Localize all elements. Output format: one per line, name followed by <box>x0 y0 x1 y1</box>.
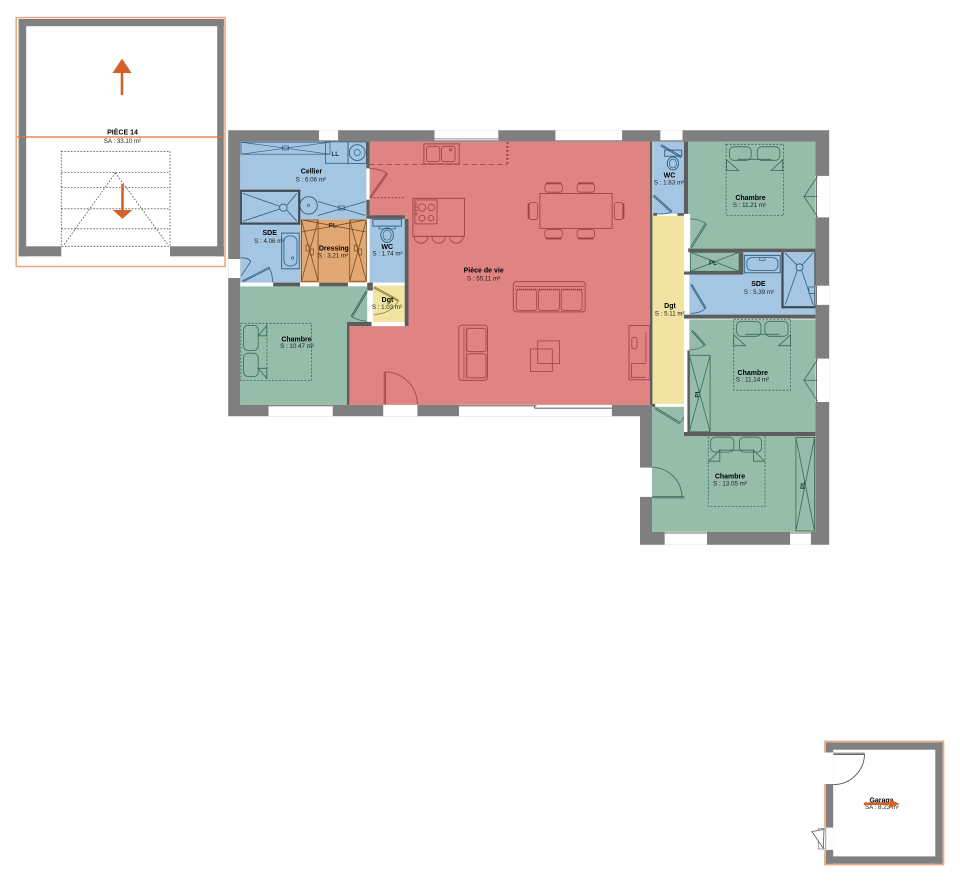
svg-text:S : 5.39 m²: S : 5.39 m² <box>744 289 774 296</box>
svg-text:PIÈCE 14: PIÈCE 14 <box>107 127 138 136</box>
svg-text:S : 6.06 m²: S : 6.06 m² <box>296 177 326 184</box>
svg-text:S : 3.21 m²: S : 3.21 m² <box>318 252 348 259</box>
svg-text:Pièce de vie: Pièce de vie <box>464 268 504 275</box>
svg-text:S : 5.11 m²: S : 5.11 m² <box>655 310 685 317</box>
svg-text:S : 1.83 m²: S : 1.83 m² <box>654 179 684 186</box>
svg-text:S : 1.74 m²: S : 1.74 m² <box>372 251 402 258</box>
svg-text:SDE: SDE <box>751 281 766 288</box>
svg-text:S : 11.14 m²: S : 11.14 m² <box>736 377 769 384</box>
svg-text:Dgt: Dgt <box>382 297 394 304</box>
svg-text:S : 55.11 m²: S : 55.11 m² <box>467 276 500 283</box>
svg-text:S : 10.47 m²: S : 10.47 m² <box>280 343 314 350</box>
svg-text:PL: PL <box>800 481 807 489</box>
svg-text:SA : 33.10 m²: SA : 33.10 m² <box>104 138 142 145</box>
svg-text:S : 13.05 m²: S : 13.05 m² <box>713 481 747 488</box>
svg-text:S : 11.21 m²: S : 11.21 m² <box>733 202 766 209</box>
svg-text:WC: WC <box>664 172 676 179</box>
svg-text:PL: PL <box>329 223 337 230</box>
svg-text:PL: PL <box>695 389 702 397</box>
svg-text:LL: LL <box>332 151 340 158</box>
svg-text:PL: PL <box>709 260 717 267</box>
svg-text:Chambre: Chambre <box>715 473 745 480</box>
svg-text:Cellier: Cellier <box>301 168 323 175</box>
svg-text:S : 1.03 m²: S : 1.03 m² <box>372 304 402 311</box>
svg-text:S : 4.06 m²: S : 4.06 m² <box>254 238 284 245</box>
svg-text:SDE: SDE <box>262 230 277 237</box>
svg-text:Dgt: Dgt <box>664 303 676 310</box>
